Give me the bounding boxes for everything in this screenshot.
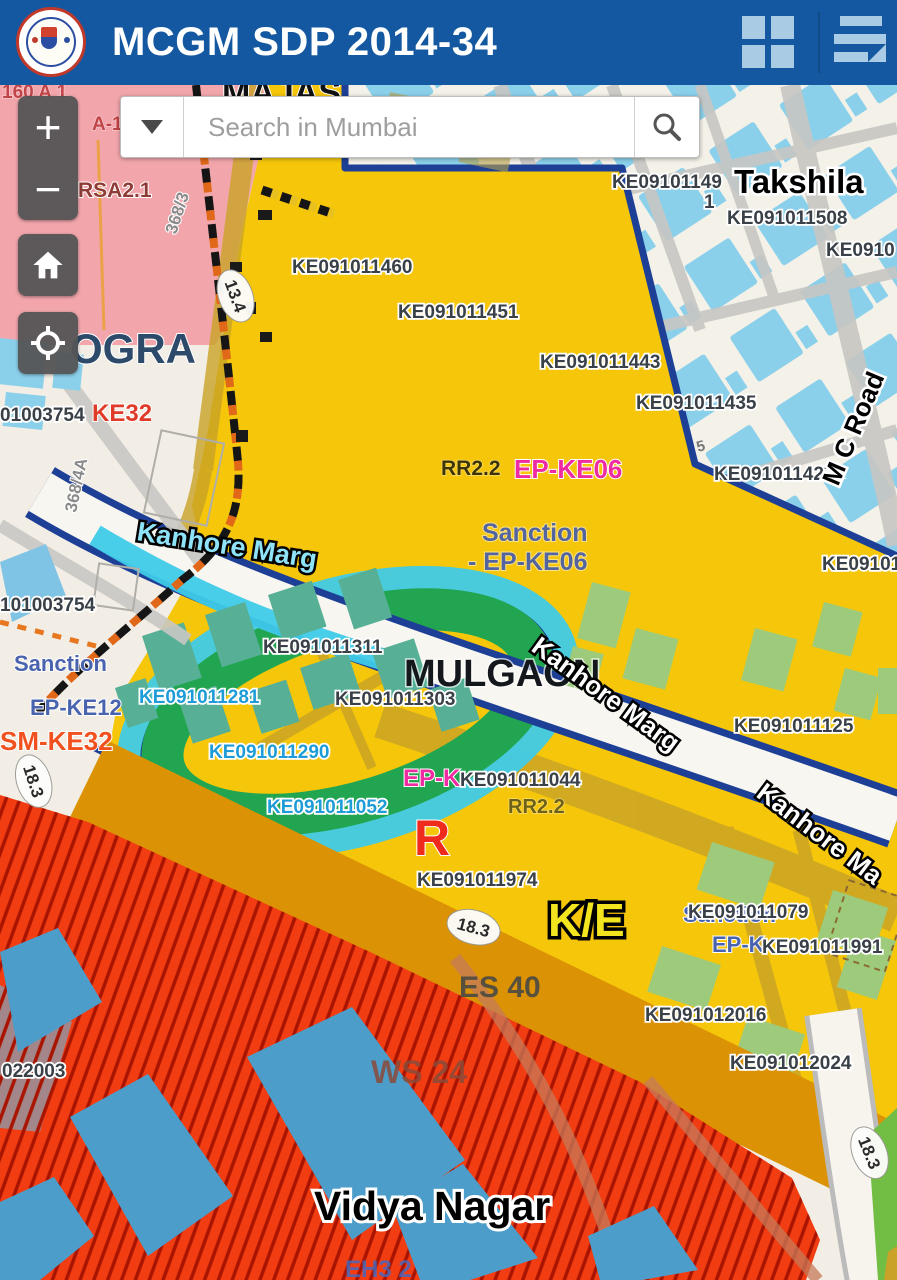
map-label-rsa2-1-3: RSA2.1 [78,179,152,202]
map-label-ke091011290-38: KE091011290 [209,742,329,763]
map-label-sanction-11: Sanction [14,651,107,676]
map-label-101003754-10: 101003754 [0,595,96,616]
map-label-k-e-47: K/E [548,894,625,946]
map-layers: MAJAS160 A 1A-1RSA2.1368/313.4OGRA010037… [0,74,897,1280]
page-title: MCGM SDP 2014-34 [112,0,497,85]
zoom-control: + − [18,96,78,220]
map-label-sanction-31: Sanction [482,519,588,547]
map-label-ke09101149-20: KE09101149 [612,172,722,193]
map-label-ke091011281-36: KE091011281 [139,687,260,708]
map-label-ke091011125-44: KE091011125 [734,716,854,737]
search-bar [120,96,700,158]
map-label-ke091011460-16: KE091011460 [292,257,412,278]
map-label-ep-k-39: EP-K [403,765,461,792]
header-divider [818,12,820,73]
locate-button[interactable] [18,312,78,374]
app-header: MCGM SDP 2014-34 [0,0,897,85]
mcgm-seal-icon [26,17,76,67]
search-button[interactable] [634,97,699,157]
search-input[interactable] [184,97,634,157]
map-label-ep-ke06-30: EP-KE06 [514,454,622,484]
menu-layers-icon[interactable] [832,15,888,69]
map-label-r-43: R [414,810,450,866]
map-label-ke091011079-50: KE091011079 [688,902,808,923]
map-label-ke091011451-17: KE091011451 [398,302,519,323]
map-label-ke091011311-35: KE091011311 [263,637,383,658]
map-label-ke091012016-54: KE091012016 [645,1005,767,1026]
map-label-01003754-7: 01003754 [0,405,85,426]
search-source-dropdown[interactable] [121,97,184,157]
map-label-ep-k-51: EP-K [712,932,765,957]
map-label-vidya-nagar-58: Vidya Nagar [314,1183,550,1229]
map-label-ke091012024-55: KE091012024 [730,1053,852,1074]
map-label-rr2-2-42: RR2.2 [508,796,565,818]
map-label-takshila-22: Takshila [734,163,864,200]
map-label-ogra-6: OGRA [70,325,196,372]
map-label-022003-56: 022003 [2,1061,65,1082]
home-button[interactable] [18,234,78,296]
map-label-ke32-8: KE32 [92,400,152,427]
map-label-sm-ke32-13: SM-KE32 [0,726,113,756]
search-icon [650,110,684,144]
map-label-ep-ke12-12: EP-KE12 [30,695,122,720]
home-icon [32,250,64,280]
map-label-ke091011508-23: KE091011508 [727,208,847,229]
map-label-ke091011044-40: KE091011044 [460,770,581,791]
map-label-ws-24-57: WS 24 [371,1054,467,1090]
grid-apps-icon[interactable] [742,16,794,68]
map-label-ke091011974-46: KE091011974 [417,870,538,891]
zoom-in-button[interactable]: + [18,96,78,158]
map-label-ke091011443-18: KE091011443 [540,352,660,373]
map-label--ep-ke06-32: - EP-KE06 [468,548,587,576]
map-label-ke09101-27: KE09101 [822,554,897,575]
map-label-ke0910-24: KE0910 [826,240,895,261]
mcgm-logo [16,7,86,77]
map-label-ke091011052-41: KE091011052 [267,797,387,818]
map-label-ke091011303-37: KE091011303 [335,689,455,710]
map-label-a-1-2: A-1 [92,114,123,135]
map-label-ke091011435-19: KE091011435 [636,393,757,414]
map-label-es-40-53: ES 40 [459,971,541,1004]
map-canvas[interactable]: MAJAS160 A 1A-1RSA2.1368/313.4OGRA010037… [0,0,897,1280]
map-label-rr2-2-29: RR2.2 [441,457,501,480]
map-label-eh3-2-59: EH3 2 [345,1256,412,1280]
map-label-ke091011991-52: KE091011991 [762,937,883,958]
map-label-1-21: 1 [704,192,715,213]
locate-icon [31,326,65,360]
zoom-out-button[interactable]: − [18,158,78,220]
app-window: MAJAS160 A 1A-1RSA2.1368/313.4OGRA010037… [0,0,897,1280]
chevron-down-icon [141,120,163,134]
